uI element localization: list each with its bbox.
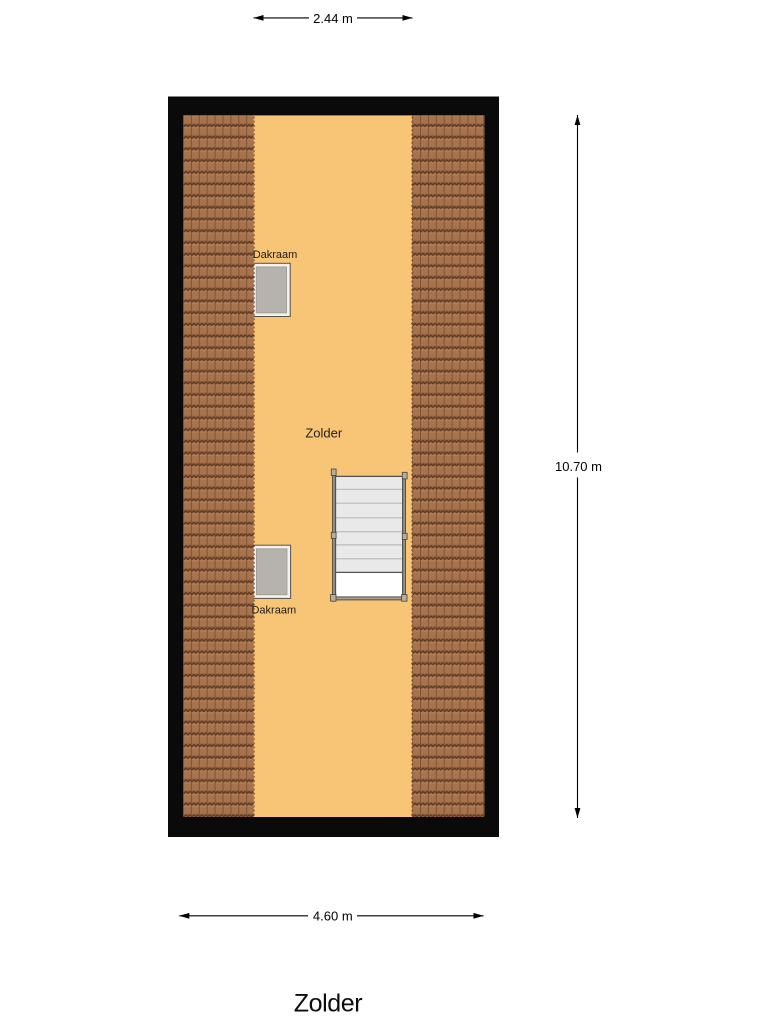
svg-text:Zolder: Zolder [294, 990, 363, 1018]
svg-text:Dakraam: Dakraam [251, 605, 296, 617]
svg-text:2.44 m: 2.44 m [313, 11, 353, 26]
svg-text:Zolder: Zolder [305, 426, 343, 441]
svg-text:4.60 m: 4.60 m [313, 908, 353, 923]
svg-text:Dakraam: Dakraam [253, 249, 298, 261]
svg-text:10.70 m: 10.70 m [555, 459, 602, 474]
